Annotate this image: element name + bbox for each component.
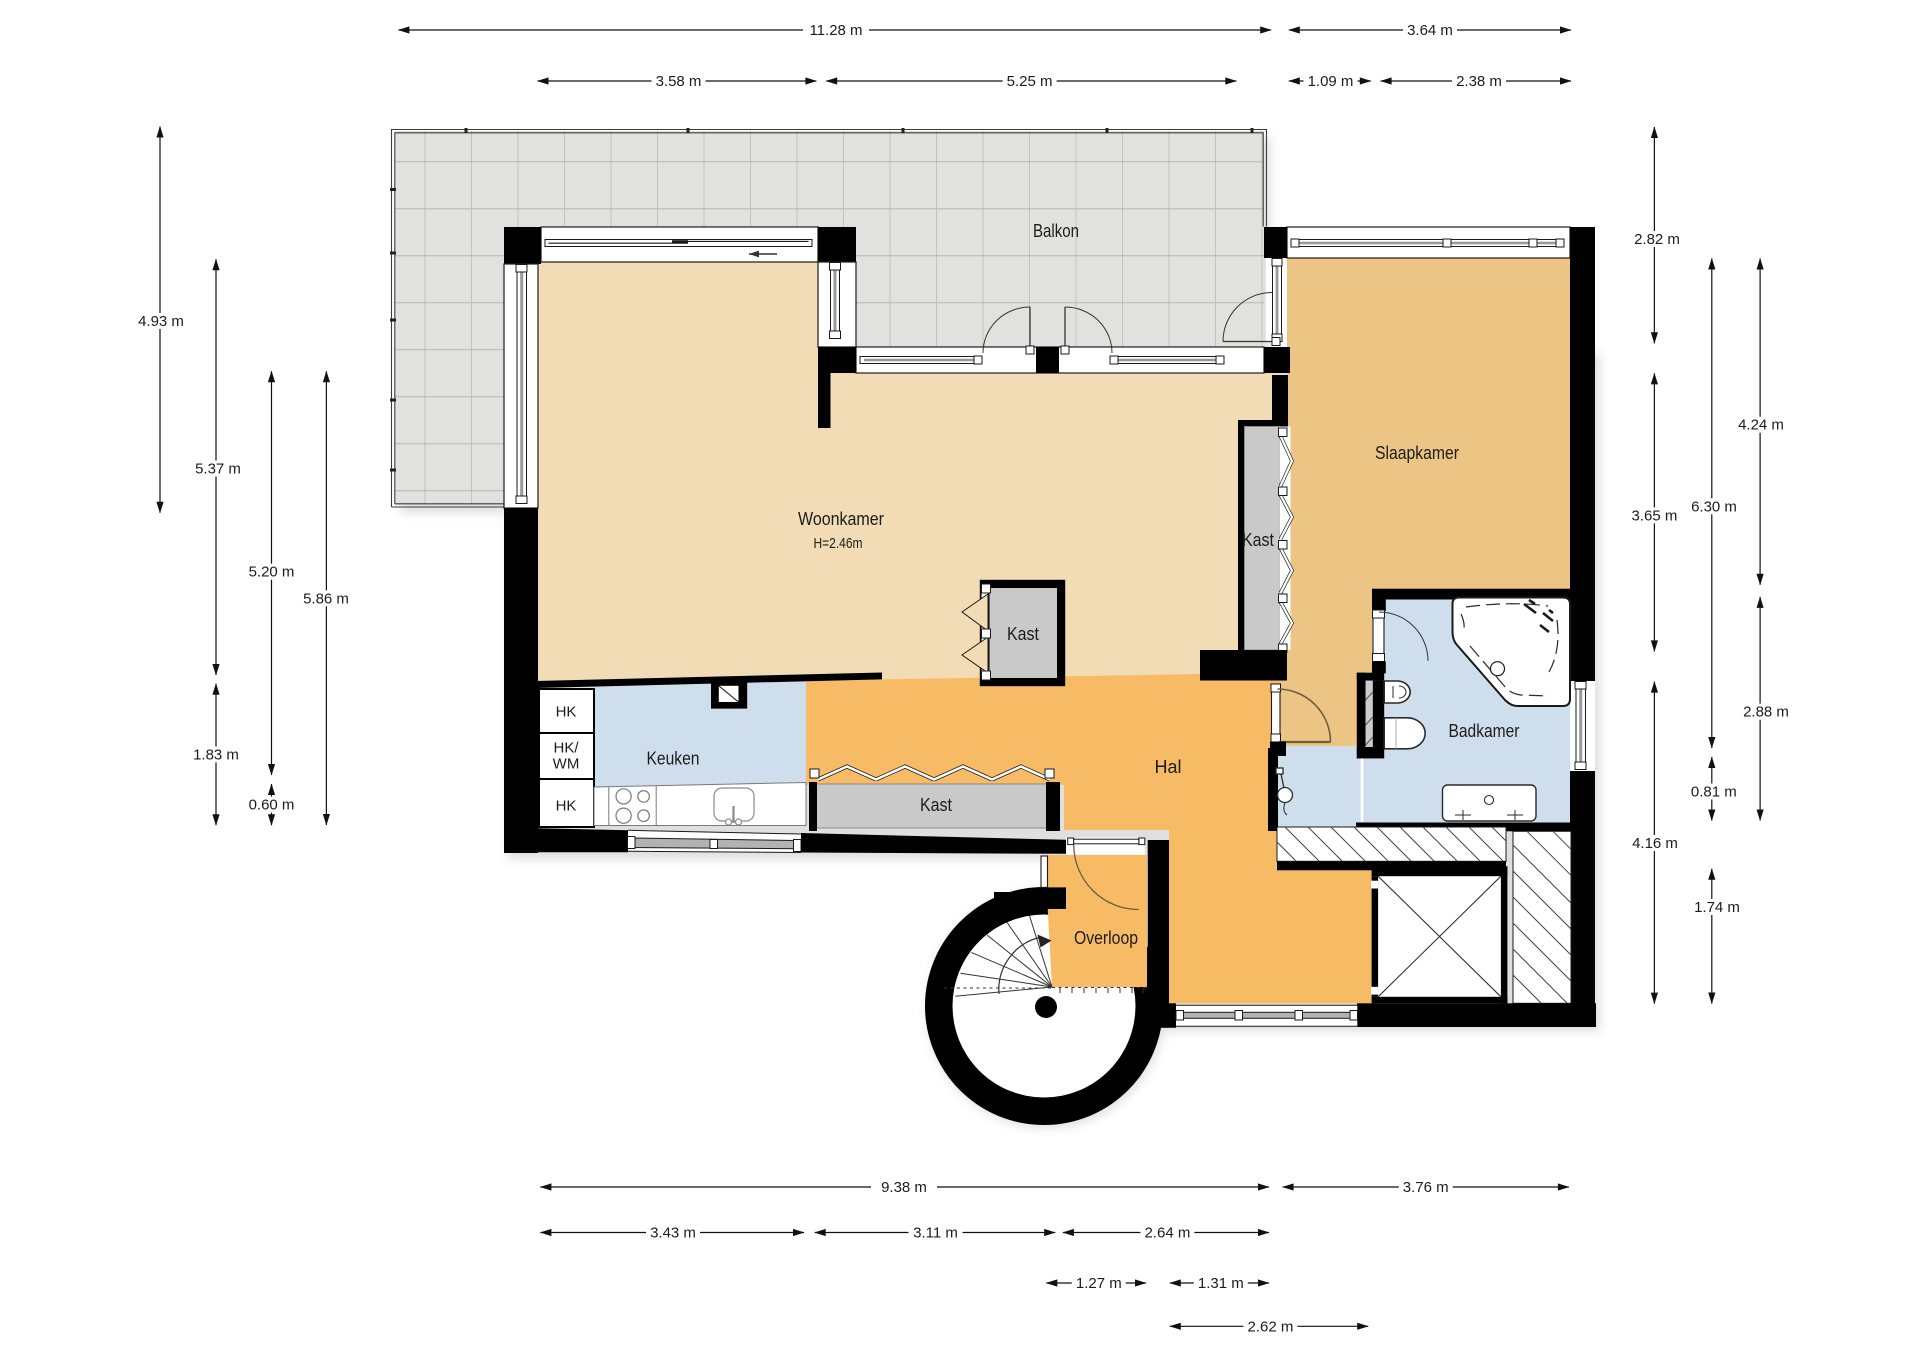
svg-text:1.27 m: 1.27 m	[1076, 1275, 1122, 1292]
svg-text:2.82 m: 2.82 m	[1634, 231, 1680, 248]
svg-text:1.83 m: 1.83 m	[193, 746, 239, 763]
svg-text:4.93 m: 4.93 m	[138, 313, 184, 330]
svg-text:Keuken: Keuken	[647, 749, 700, 769]
svg-text:4.24 m: 4.24 m	[1738, 417, 1784, 434]
svg-text:WM: WM	[553, 756, 580, 773]
svg-text:3.11 m: 3.11 m	[913, 1225, 958, 1242]
svg-text:Kast: Kast	[1007, 624, 1039, 644]
svg-text:3.65 m: 3.65 m	[1631, 507, 1677, 524]
svg-text:3.76 m: 3.76 m	[1403, 1179, 1449, 1196]
svg-text:Overloop: Overloop	[1074, 928, 1138, 948]
svg-text:Balkon: Balkon	[1033, 221, 1079, 241]
svg-text:HK/: HK/	[553, 740, 579, 757]
svg-text:Woonkamer: Woonkamer	[798, 509, 884, 529]
svg-text:5.37 m: 5.37 m	[195, 461, 241, 478]
svg-text:5.86 m: 5.86 m	[303, 590, 349, 607]
svg-text:H=2.46m: H=2.46m	[814, 535, 863, 552]
svg-text:Hal: Hal	[1155, 757, 1182, 777]
svg-text:1.09 m: 1.09 m	[1308, 73, 1354, 90]
svg-text:9.38 m: 9.38 m	[881, 1179, 927, 1196]
svg-text:3.43 m: 3.43 m	[650, 1225, 696, 1242]
svg-text:HK: HK	[556, 798, 577, 815]
svg-text:6.30 m: 6.30 m	[1691, 498, 1737, 515]
svg-text:1.74 m: 1.74 m	[1694, 899, 1740, 916]
svg-text:Kast: Kast	[920, 795, 952, 815]
svg-text:5.25 m: 5.25 m	[1007, 73, 1053, 90]
svg-text:Badkamer: Badkamer	[1449, 721, 1520, 741]
svg-text:2.88 m: 2.88 m	[1743, 704, 1789, 721]
svg-text:2.62 m: 2.62 m	[1247, 1318, 1293, 1335]
svg-text:0.60 m: 0.60 m	[249, 797, 295, 814]
svg-text:2.38 m: 2.38 m	[1456, 73, 1502, 90]
svg-text:0.81 m: 0.81 m	[1691, 784, 1737, 801]
svg-text:Kast: Kast	[1242, 530, 1274, 550]
svg-text:2.64 m: 2.64 m	[1144, 1225, 1190, 1242]
svg-text:HK: HK	[556, 704, 577, 721]
svg-text:4.16 m: 4.16 m	[1632, 835, 1678, 852]
svg-text:5.20 m: 5.20 m	[249, 564, 295, 581]
svg-text:3.58 m: 3.58 m	[656, 73, 702, 90]
svg-text:11.28 m: 11.28 m	[809, 22, 862, 39]
svg-text:3.64 m: 3.64 m	[1407, 22, 1453, 39]
svg-text:Slaapkamer: Slaapkamer	[1375, 443, 1459, 463]
svg-text:1.31 m: 1.31 m	[1198, 1275, 1244, 1292]
